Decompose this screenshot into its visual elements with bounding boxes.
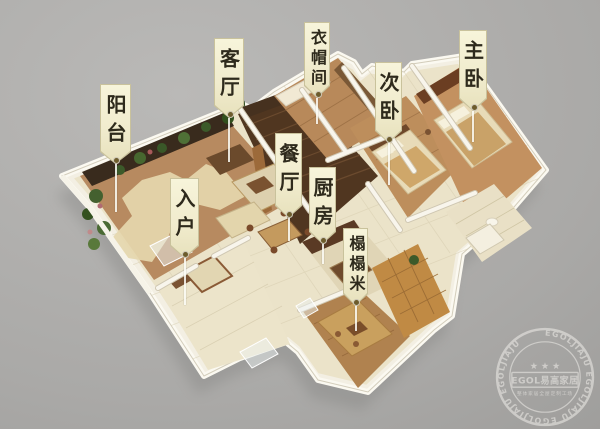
dining-pointer-dot xyxy=(286,211,293,218)
balcony-pointer-dot xyxy=(113,157,120,164)
label-second-bedroom-text: 次卧 xyxy=(374,63,403,142)
second-bedroom-pointer-dot xyxy=(386,136,393,143)
entrance-pointer-dot xyxy=(182,251,189,258)
kitchen-stem xyxy=(322,244,324,264)
cloakroom-stem xyxy=(316,98,318,124)
dining-stem xyxy=(288,218,290,241)
floorplan-render xyxy=(0,0,600,429)
label-living-room: 客厅 xyxy=(214,38,244,118)
label-balcony: 阳台 xyxy=(100,84,131,164)
label-cloakroom-text: 衣帽间 xyxy=(305,23,329,97)
label-kitchen-text: 厨房 xyxy=(308,168,337,243)
master-bedroom-pointer-dot xyxy=(471,104,478,111)
balcony-stem xyxy=(115,164,117,212)
living-pointer-dot xyxy=(227,111,234,118)
label-dining-room: 餐厅 xyxy=(275,133,302,218)
master-bedroom-stem xyxy=(472,111,474,142)
label-second-bedroom: 次卧 xyxy=(375,62,402,143)
living-stem xyxy=(228,118,230,162)
label-living-room-text: 客厅 xyxy=(215,39,244,117)
label-balcony-text: 阳台 xyxy=(101,85,130,163)
label-entrance-text: 入户 xyxy=(170,179,199,257)
cloakroom-pointer-dot xyxy=(315,91,322,98)
label-master-bedroom: 主卧 xyxy=(459,30,487,111)
kitchen-pointer-dot xyxy=(320,237,327,244)
tatami-stem xyxy=(355,306,357,331)
label-entrance: 入户 xyxy=(170,178,199,258)
label-cloakroom: 衣帽间 xyxy=(304,22,330,98)
tatami-pointer-dot xyxy=(353,299,360,306)
label-master-bedroom-text: 主卧 xyxy=(459,31,488,110)
label-dining-room-text: 餐厅 xyxy=(274,134,303,217)
label-tatami-text: 榻榻米 xyxy=(344,229,368,305)
entrance-stem xyxy=(184,258,186,305)
label-tatami: 榻榻米 xyxy=(343,228,368,306)
screenshot-stage: 阳台 客厅 衣帽间 次卧 主卧 餐厅 入户 厨房 榻榻米 EGOLJIAJU E… xyxy=(0,0,600,429)
label-kitchen: 厨房 xyxy=(309,167,336,244)
second-bedroom-stem xyxy=(388,143,390,185)
